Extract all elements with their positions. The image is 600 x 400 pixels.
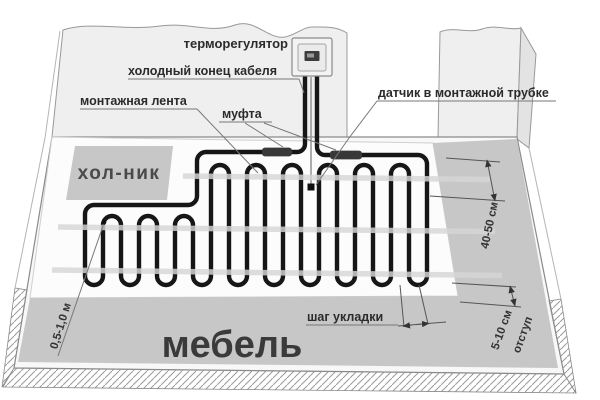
sensor-dot <box>308 184 315 191</box>
diagram-canvas: терморегулятор холодный конец кабеля мон… <box>0 0 600 400</box>
label-cold-end: холодный конец кабеля <box>128 64 277 78</box>
label-thermostat: терморегулятор <box>184 36 288 51</box>
label-furniture: мебель <box>162 324 303 366</box>
label-laying-step: шаг укладки <box>307 310 383 324</box>
label-coupling: муфта <box>222 107 263 121</box>
coupling-left <box>262 148 292 157</box>
label-sensor: датчик в монтажной трубке <box>378 86 549 100</box>
thermostat-box <box>292 38 332 76</box>
tape-band-1 <box>183 176 490 180</box>
label-mounting-tape: монтажная лента <box>80 94 188 108</box>
wall-pillar-front <box>438 27 521 139</box>
label-fridge: хол-ник <box>78 163 161 184</box>
floor-heating-diagram: терморегулятор холодный конец кабеля мон… <box>0 0 600 400</box>
left-distance-dot <box>102 220 107 225</box>
